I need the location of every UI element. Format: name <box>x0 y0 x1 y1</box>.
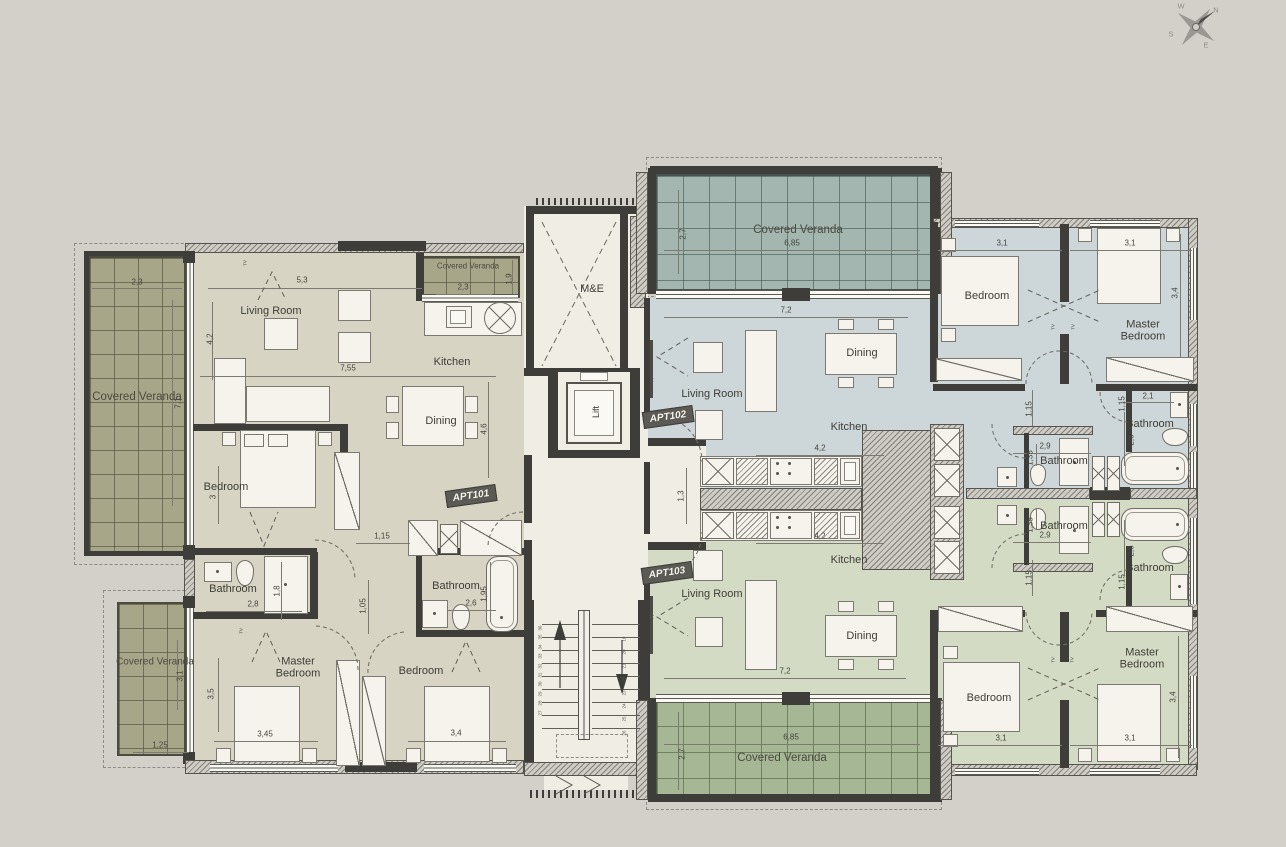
window <box>955 220 1039 227</box>
wall <box>933 384 1025 391</box>
wall <box>416 630 528 637</box>
window <box>1090 768 1160 775</box>
wall <box>1024 508 1029 565</box>
window <box>1190 562 1197 604</box>
compass-n: N <box>1213 6 1218 15</box>
lift-wall <box>548 372 558 458</box>
side-table <box>695 410 723 440</box>
wall <box>193 548 317 555</box>
wall <box>636 172 648 294</box>
utility-block <box>862 430 934 570</box>
compass-icon <box>1164 0 1229 59</box>
veranda-top-right <box>655 174 933 291</box>
wardrobe <box>1106 357 1194 382</box>
nightstand <box>943 646 958 659</box>
chair <box>878 601 894 612</box>
lift-car-inner <box>574 390 614 436</box>
sink-basin <box>844 462 856 481</box>
compass-s: S <box>1168 30 1173 39</box>
counter-hatch <box>736 512 768 539</box>
wardrobe <box>334 452 360 530</box>
tv-unit <box>650 596 653 654</box>
armchair <box>693 342 723 373</box>
sofa <box>214 358 246 424</box>
shaft <box>1092 456 1105 491</box>
wall <box>84 551 188 556</box>
wall <box>620 212 628 372</box>
wall <box>700 488 862 510</box>
side-table <box>695 617 723 647</box>
wall-fringe <box>530 790 642 798</box>
wardrobe <box>336 660 360 766</box>
nightstand <box>406 748 421 763</box>
tv-unit <box>650 340 653 398</box>
wardrobe <box>460 520 522 556</box>
armchair <box>693 550 723 581</box>
shaft <box>934 428 960 461</box>
chair <box>878 659 894 670</box>
nightstand <box>222 432 236 446</box>
sink-basin <box>450 310 466 324</box>
wall <box>644 462 650 506</box>
wall <box>526 206 534 374</box>
window <box>186 258 194 550</box>
wardrobe <box>362 676 386 766</box>
wall <box>1024 433 1029 491</box>
chair <box>878 319 894 330</box>
shaft <box>440 524 458 554</box>
cabinet <box>702 458 734 485</box>
wall <box>648 542 706 550</box>
hob <box>484 302 516 334</box>
shaft <box>1092 502 1105 537</box>
lift-door <box>580 372 608 381</box>
bed <box>1097 228 1161 304</box>
window <box>1190 518 1197 564</box>
wall-fringe <box>536 198 644 205</box>
stair-wall <box>524 600 534 770</box>
wall <box>84 251 89 556</box>
wall <box>644 506 650 534</box>
wall <box>1060 612 1069 662</box>
cabinet <box>702 512 734 539</box>
nightstand <box>302 748 317 763</box>
stair-treads <box>592 612 640 738</box>
shaft <box>934 541 960 574</box>
chair <box>838 319 854 330</box>
wall <box>183 251 195 263</box>
wardrobe <box>1106 606 1193 632</box>
nightstand <box>492 748 507 763</box>
stair-treads <box>542 612 578 738</box>
veranda-bottom-right <box>655 698 933 798</box>
bed <box>234 686 300 762</box>
wall <box>650 794 938 802</box>
wardrobe <box>936 358 1022 381</box>
sink-basin <box>844 516 856 535</box>
wall <box>930 610 938 770</box>
wall <box>524 455 532 523</box>
wall <box>338 241 426 251</box>
window <box>955 768 1039 775</box>
coffee-table <box>264 318 298 350</box>
nightstand <box>1078 228 1092 242</box>
nightstand <box>1078 748 1092 762</box>
window <box>1190 676 1197 748</box>
dining-table <box>825 333 897 375</box>
wall <box>1126 390 1132 452</box>
sofa <box>745 330 777 412</box>
floor-plan-canvas: Living RoomKitchenDiningBedroomBathroomB… <box>0 0 1286 847</box>
window <box>424 764 516 772</box>
counter-hatch <box>736 458 768 485</box>
shaft <box>1107 502 1120 537</box>
bed <box>1097 684 1161 762</box>
wall <box>524 762 648 776</box>
window <box>1190 248 1197 320</box>
window <box>422 294 518 302</box>
sofa <box>745 580 777 670</box>
wall <box>782 288 810 301</box>
counter-hatch <box>814 512 838 539</box>
wardrobe <box>938 606 1023 632</box>
window <box>210 764 338 772</box>
wall <box>530 206 648 214</box>
wall <box>782 692 810 705</box>
nightstand <box>941 328 956 342</box>
wall <box>966 488 1090 499</box>
wall <box>650 166 938 174</box>
wall <box>1096 384 1197 391</box>
pillow <box>268 434 288 447</box>
window <box>1190 404 1197 446</box>
shaft <box>1107 456 1120 491</box>
floor-lobby <box>648 446 706 542</box>
veranda-small <box>420 256 520 298</box>
wall <box>648 168 656 294</box>
nightstand <box>318 432 332 446</box>
wall <box>1130 488 1197 499</box>
wall <box>183 596 195 608</box>
chair <box>838 601 854 612</box>
lift-wall <box>548 450 640 458</box>
dining-table <box>402 386 464 446</box>
pillow <box>244 434 264 447</box>
chair <box>386 396 399 413</box>
stair-landing-dashed <box>556 734 628 758</box>
nightstand <box>1166 228 1180 242</box>
bed <box>941 256 1019 326</box>
cabinet <box>338 290 371 321</box>
chair <box>878 377 894 388</box>
wall <box>1060 224 1069 302</box>
cabinet <box>338 332 371 363</box>
counter-hatch <box>814 458 838 485</box>
shaft <box>934 506 960 539</box>
shaft <box>934 464 960 497</box>
entrance-porch <box>544 776 628 790</box>
window <box>186 606 194 754</box>
wall <box>1060 700 1069 768</box>
wall <box>84 251 188 256</box>
lift-wall <box>630 372 640 458</box>
window <box>1090 220 1160 227</box>
compass-e: E <box>1203 41 1208 50</box>
wall <box>1126 546 1132 608</box>
bed <box>424 686 490 762</box>
sofa <box>246 386 330 422</box>
chair <box>838 659 854 670</box>
wall <box>310 552 318 616</box>
nightstand <box>216 748 231 763</box>
chair <box>386 422 399 439</box>
chair <box>465 422 478 439</box>
wardrobe <box>408 520 438 556</box>
veranda-bottom-left <box>117 602 186 756</box>
bed <box>943 662 1020 732</box>
dining-table <box>825 615 897 657</box>
compass-w: W <box>1177 2 1184 11</box>
wall <box>648 698 656 802</box>
wall <box>1060 334 1069 384</box>
chair <box>465 396 478 413</box>
stair-stringer <box>578 610 590 740</box>
chair <box>838 377 854 388</box>
